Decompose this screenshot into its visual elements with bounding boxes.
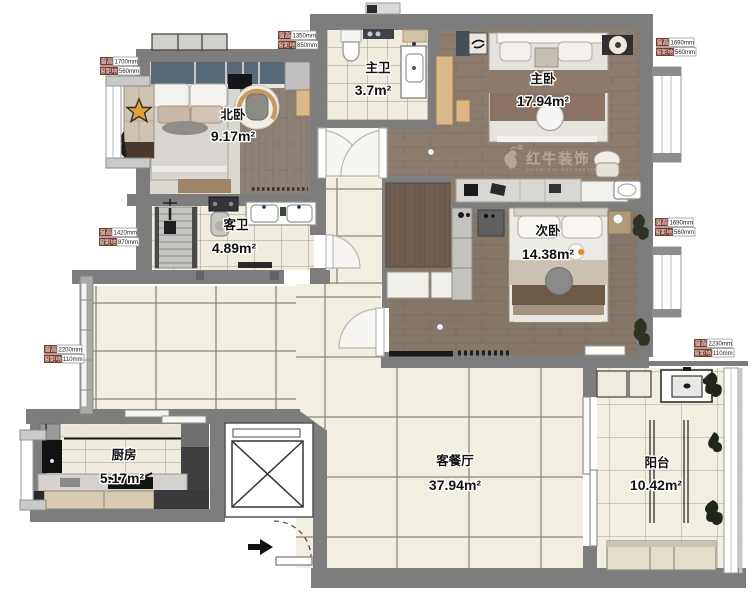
svg-text:客餐厅: 客餐厅: [435, 453, 474, 468]
svg-text:1690mm: 1690mm: [671, 41, 694, 47]
svg-text:客卫: 客卫: [222, 217, 249, 232]
svg-text:870mm: 870mm: [118, 240, 138, 246]
svg-text:17.94m²: 17.94m²: [517, 93, 569, 109]
svg-text:窗距地: 窗距地: [655, 228, 672, 236]
svg-text:560mm: 560mm: [674, 230, 694, 236]
svg-text:窗高: 窗高: [279, 32, 291, 40]
svg-text:窗高: 窗高: [100, 229, 112, 237]
svg-text:厨房: 厨房: [111, 447, 136, 462]
svg-text:主卫: 主卫: [365, 60, 391, 75]
svg-text:窗距地: 窗距地: [99, 238, 116, 246]
svg-text:红牛装饰: 红牛装饰: [526, 150, 590, 168]
svg-text:110mm: 110mm: [63, 357, 83, 363]
svg-text:3.7m²: 3.7m²: [355, 82, 392, 98]
svg-text:2230mm: 2230mm: [709, 342, 732, 348]
svg-text:窗距地: 窗距地: [694, 349, 711, 357]
svg-text:窗高: 窗高: [657, 39, 669, 47]
svg-text:5.17m²: 5.17m²: [100, 470, 145, 486]
svg-text:窗距地: 窗距地: [278, 41, 295, 49]
svg-text:4.89m²: 4.89m²: [212, 240, 257, 256]
svg-text:560mm: 560mm: [119, 69, 139, 75]
svg-text:37.94m²: 37.94m²: [429, 477, 481, 493]
svg-text:560mm: 560mm: [675, 50, 695, 56]
svg-text:1700mm: 1700mm: [115, 60, 138, 66]
svg-text:850mm: 850mm: [297, 43, 317, 49]
svg-text:阳台: 阳台: [644, 455, 669, 470]
svg-text:窗距地: 窗距地: [656, 48, 673, 56]
svg-text:1420mm: 1420mm: [114, 231, 137, 237]
svg-text:14.38m²: 14.38m²: [522, 246, 574, 262]
svg-text:主卧: 主卧: [530, 71, 556, 86]
svg-text:窗高: 窗高: [101, 58, 113, 66]
svg-text:窗高: 窗高: [695, 340, 707, 348]
svg-text:2200mm: 2200mm: [59, 348, 82, 354]
svg-text:9.17m²: 9.17m²: [211, 128, 256, 144]
svg-text:窗距地: 窗距地: [100, 67, 117, 75]
svg-text:HONG NIU DECORATION: HONG NIU DECORATION: [527, 168, 602, 172]
svg-text:窗高: 窗高: [656, 219, 668, 227]
svg-text:北卧: 北卧: [220, 107, 246, 122]
svg-text:次卧: 次卧: [535, 223, 561, 238]
svg-text:1350mm: 1350mm: [293, 34, 316, 40]
svg-text:窗高: 窗高: [45, 346, 57, 354]
svg-text:窗距地: 窗距地: [44, 355, 61, 363]
svg-text:110mm: 110mm: [713, 351, 733, 357]
svg-text:1690mm: 1690mm: [670, 221, 693, 227]
svg-text:10.42m²: 10.42m²: [630, 477, 682, 493]
